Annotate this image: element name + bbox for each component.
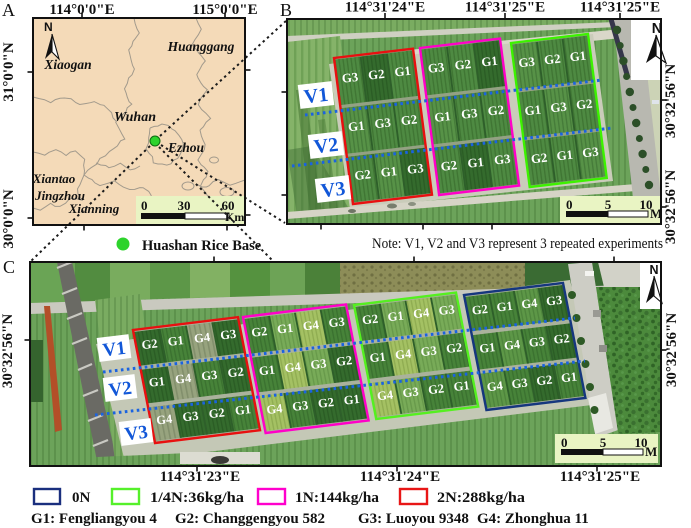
svg-text:G3: G3 — [374, 115, 392, 131]
svg-text:G2: G2 — [354, 167, 372, 183]
svg-text:G3: G3 — [292, 398, 309, 414]
svg-text:G3: G3 — [406, 161, 424, 177]
svg-text:0: 0 — [566, 197, 573, 212]
svg-text:114°31'24"E: 114°31'24"E — [345, 0, 425, 16]
svg-text:M: M — [645, 444, 657, 459]
svg-text:G2: G2 — [427, 381, 444, 397]
svg-text:30°32'56"N: 30°32'56"N — [664, 313, 680, 387]
svg-text:G4: G4 — [284, 359, 302, 375]
svg-text:G1: G1 — [347, 119, 365, 135]
svg-text:G3: G3 — [310, 356, 327, 372]
svg-text:G1: G1 — [343, 392, 360, 408]
svg-text:V3: V3 — [123, 422, 149, 446]
svg-text:G2: G2 — [400, 112, 418, 128]
svg-text:G1: G1 — [276, 321, 293, 337]
svg-text:G1: Fengliangyou 4: G1: Fengliangyou 4 — [31, 511, 157, 527]
svg-text:G2: G2 — [487, 103, 505, 119]
svg-text:G4: G4 — [266, 401, 284, 417]
svg-text:G4: G4 — [193, 330, 211, 346]
svg-text:30: 30 — [178, 198, 191, 213]
svg-text:30°32'56"N: 30°32'56"N — [663, 64, 679, 138]
svg-text:G2: G2 — [317, 395, 334, 411]
svg-text:G3: G3 — [182, 409, 199, 425]
svg-text:G4: G4 — [412, 305, 430, 321]
svg-text:115°0'0"E: 115°0'0"E — [192, 2, 257, 18]
svg-text:V2: V2 — [313, 134, 340, 159]
svg-text:G3: G3 — [341, 70, 359, 86]
svg-text:G3: G3 — [493, 152, 511, 168]
svg-text:G1: G1 — [560, 369, 577, 385]
svg-text:G2: G2 — [454, 57, 472, 73]
svg-text:114°31'25"E: 114°31'25"E — [560, 469, 640, 485]
svg-text:G4: G4 — [503, 337, 521, 353]
svg-text:G2: G2 — [440, 158, 458, 174]
svg-text:30°0'0"N: 30°0'0"N — [1, 189, 17, 248]
svg-text:G1: G1 — [380, 164, 398, 180]
svg-text:G3: G3 — [220, 327, 237, 343]
svg-text:G1: G1 — [496, 299, 513, 315]
svg-text:G1: G1 — [148, 374, 165, 390]
svg-text:G2: G2 — [361, 312, 378, 328]
svg-text:N: N — [44, 20, 53, 34]
svg-text:G4: G4 — [174, 371, 192, 387]
svg-text:1/4N:36kg/ha: 1/4N:36kg/ha — [150, 490, 245, 506]
svg-text:V1: V1 — [101, 338, 127, 362]
svg-text:G3: G3 — [420, 343, 437, 359]
svg-text:G4: G4 — [302, 318, 320, 334]
svg-text:G2: G2 — [251, 324, 268, 340]
svg-text:G3: G3 — [528, 334, 545, 350]
svg-text:G1: G1 — [369, 350, 386, 366]
svg-text:V2: V2 — [107, 378, 133, 402]
svg-text:G2: G2 — [367, 67, 385, 83]
svg-text:30°32'56"N: 30°32'56"N — [0, 314, 16, 388]
svg-text:30°32'56"N: 30°32'56"N — [663, 170, 679, 244]
svg-text:G2: G2 — [471, 302, 488, 318]
svg-text:114°0'0"E: 114°0'0"E — [49, 2, 114, 18]
svg-text:Xiaogan: Xiaogan — [43, 57, 91, 72]
svg-text:G3: Luoyou 9348: G3: Luoyou 9348 — [358, 511, 469, 527]
svg-text:G1: G1 — [453, 378, 470, 394]
svg-text:2N:288kg/ha: 2N:288kg/ha — [437, 490, 526, 506]
svg-text:5: 5 — [605, 197, 612, 212]
svg-text:G4: G4 — [486, 378, 504, 394]
svg-text:Huashan Rice Base: Huashan Rice Base — [142, 238, 262, 254]
svg-text:G2: G2 — [575, 97, 593, 113]
svg-text:G4: G4 — [156, 412, 174, 428]
svg-text:G3: G3 — [328, 314, 345, 330]
svg-text:31°0'0"N: 31°0'0"N — [1, 42, 17, 101]
svg-text:G2: G2 — [445, 340, 462, 356]
svg-text:G3: G3 — [582, 145, 600, 161]
svg-text:V3: V3 — [320, 178, 347, 203]
svg-text:G1: G1 — [479, 340, 496, 356]
svg-text:Note: V1, V2 and V3 represent: Note: V1, V2 and V3 represent 3 repeated… — [372, 236, 663, 252]
svg-text:G1: G1 — [394, 64, 412, 80]
svg-text:114°31'25"E: 114°31'25"E — [580, 0, 660, 16]
svg-text:G2: G2 — [208, 405, 225, 421]
svg-text:G3: G3 — [460, 106, 478, 122]
svg-text:G3: G3 — [402, 384, 419, 400]
svg-text:G4: Zhonghua 11: G4: Zhonghua 11 — [477, 511, 589, 527]
svg-text:G4: G4 — [521, 296, 539, 312]
svg-text:G1: G1 — [524, 103, 542, 119]
svg-text:G3: G3 — [201, 368, 218, 384]
svg-text:0: 0 — [141, 198, 148, 213]
svg-text:Huanggang: Huanggang — [167, 39, 235, 54]
svg-text:G1: G1 — [569, 49, 587, 65]
svg-text:114°31'24"E: 114°31'24"E — [360, 469, 440, 485]
svg-text:0N: 0N — [72, 490, 91, 506]
svg-text:Wuhan: Wuhan — [114, 110, 156, 125]
svg-text:G3: G3 — [511, 375, 528, 391]
svg-text:0: 0 — [561, 435, 568, 450]
svg-text:N: N — [649, 263, 658, 277]
svg-text:G2: G2 — [536, 372, 553, 388]
svg-text:G3: G3 — [518, 55, 536, 71]
svg-text:C: C — [3, 257, 15, 277]
svg-text:G2: G2 — [141, 336, 158, 352]
svg-text:5: 5 — [600, 435, 607, 450]
svg-text:G1: G1 — [387, 308, 404, 324]
svg-text:G2: G2 — [227, 364, 244, 380]
svg-text:G2: Changgengyou 582: G2: Changgengyou 582 — [175, 511, 325, 527]
svg-text:114°31'25"E: 114°31'25"E — [465, 0, 545, 16]
svg-text:A: A — [2, 0, 15, 20]
svg-text:G2: G2 — [530, 151, 548, 167]
svg-text:G3: G3 — [438, 302, 455, 318]
svg-text:G1: G1 — [234, 402, 251, 418]
svg-text:G3: G3 — [427, 60, 445, 76]
svg-text:114°31'23"E: 114°31'23"E — [160, 469, 240, 485]
svg-text:G1: G1 — [258, 363, 275, 379]
svg-text:G1: G1 — [556, 148, 574, 164]
svg-text:V1: V1 — [303, 84, 330, 109]
svg-text:G2: G2 — [543, 52, 561, 68]
svg-text:G1: G1 — [167, 333, 184, 349]
svg-text:B: B — [280, 0, 292, 20]
svg-text:G1: G1 — [481, 54, 499, 70]
svg-text:Xianning: Xianning — [68, 201, 120, 216]
svg-text:G4: G4 — [376, 387, 394, 403]
svg-text:G2: G2 — [335, 353, 352, 369]
svg-text:Xiantao: Xiantao — [32, 171, 76, 186]
svg-text:G3: G3 — [545, 293, 562, 309]
svg-text:1N:144kg/ha: 1N:144kg/ha — [295, 490, 380, 506]
svg-text:G2: G2 — [553, 331, 570, 347]
svg-text:G1: G1 — [467, 155, 485, 171]
svg-text:G4: G4 — [394, 346, 412, 362]
svg-text:G1: G1 — [434, 109, 452, 125]
svg-text:G3: G3 — [550, 100, 568, 116]
